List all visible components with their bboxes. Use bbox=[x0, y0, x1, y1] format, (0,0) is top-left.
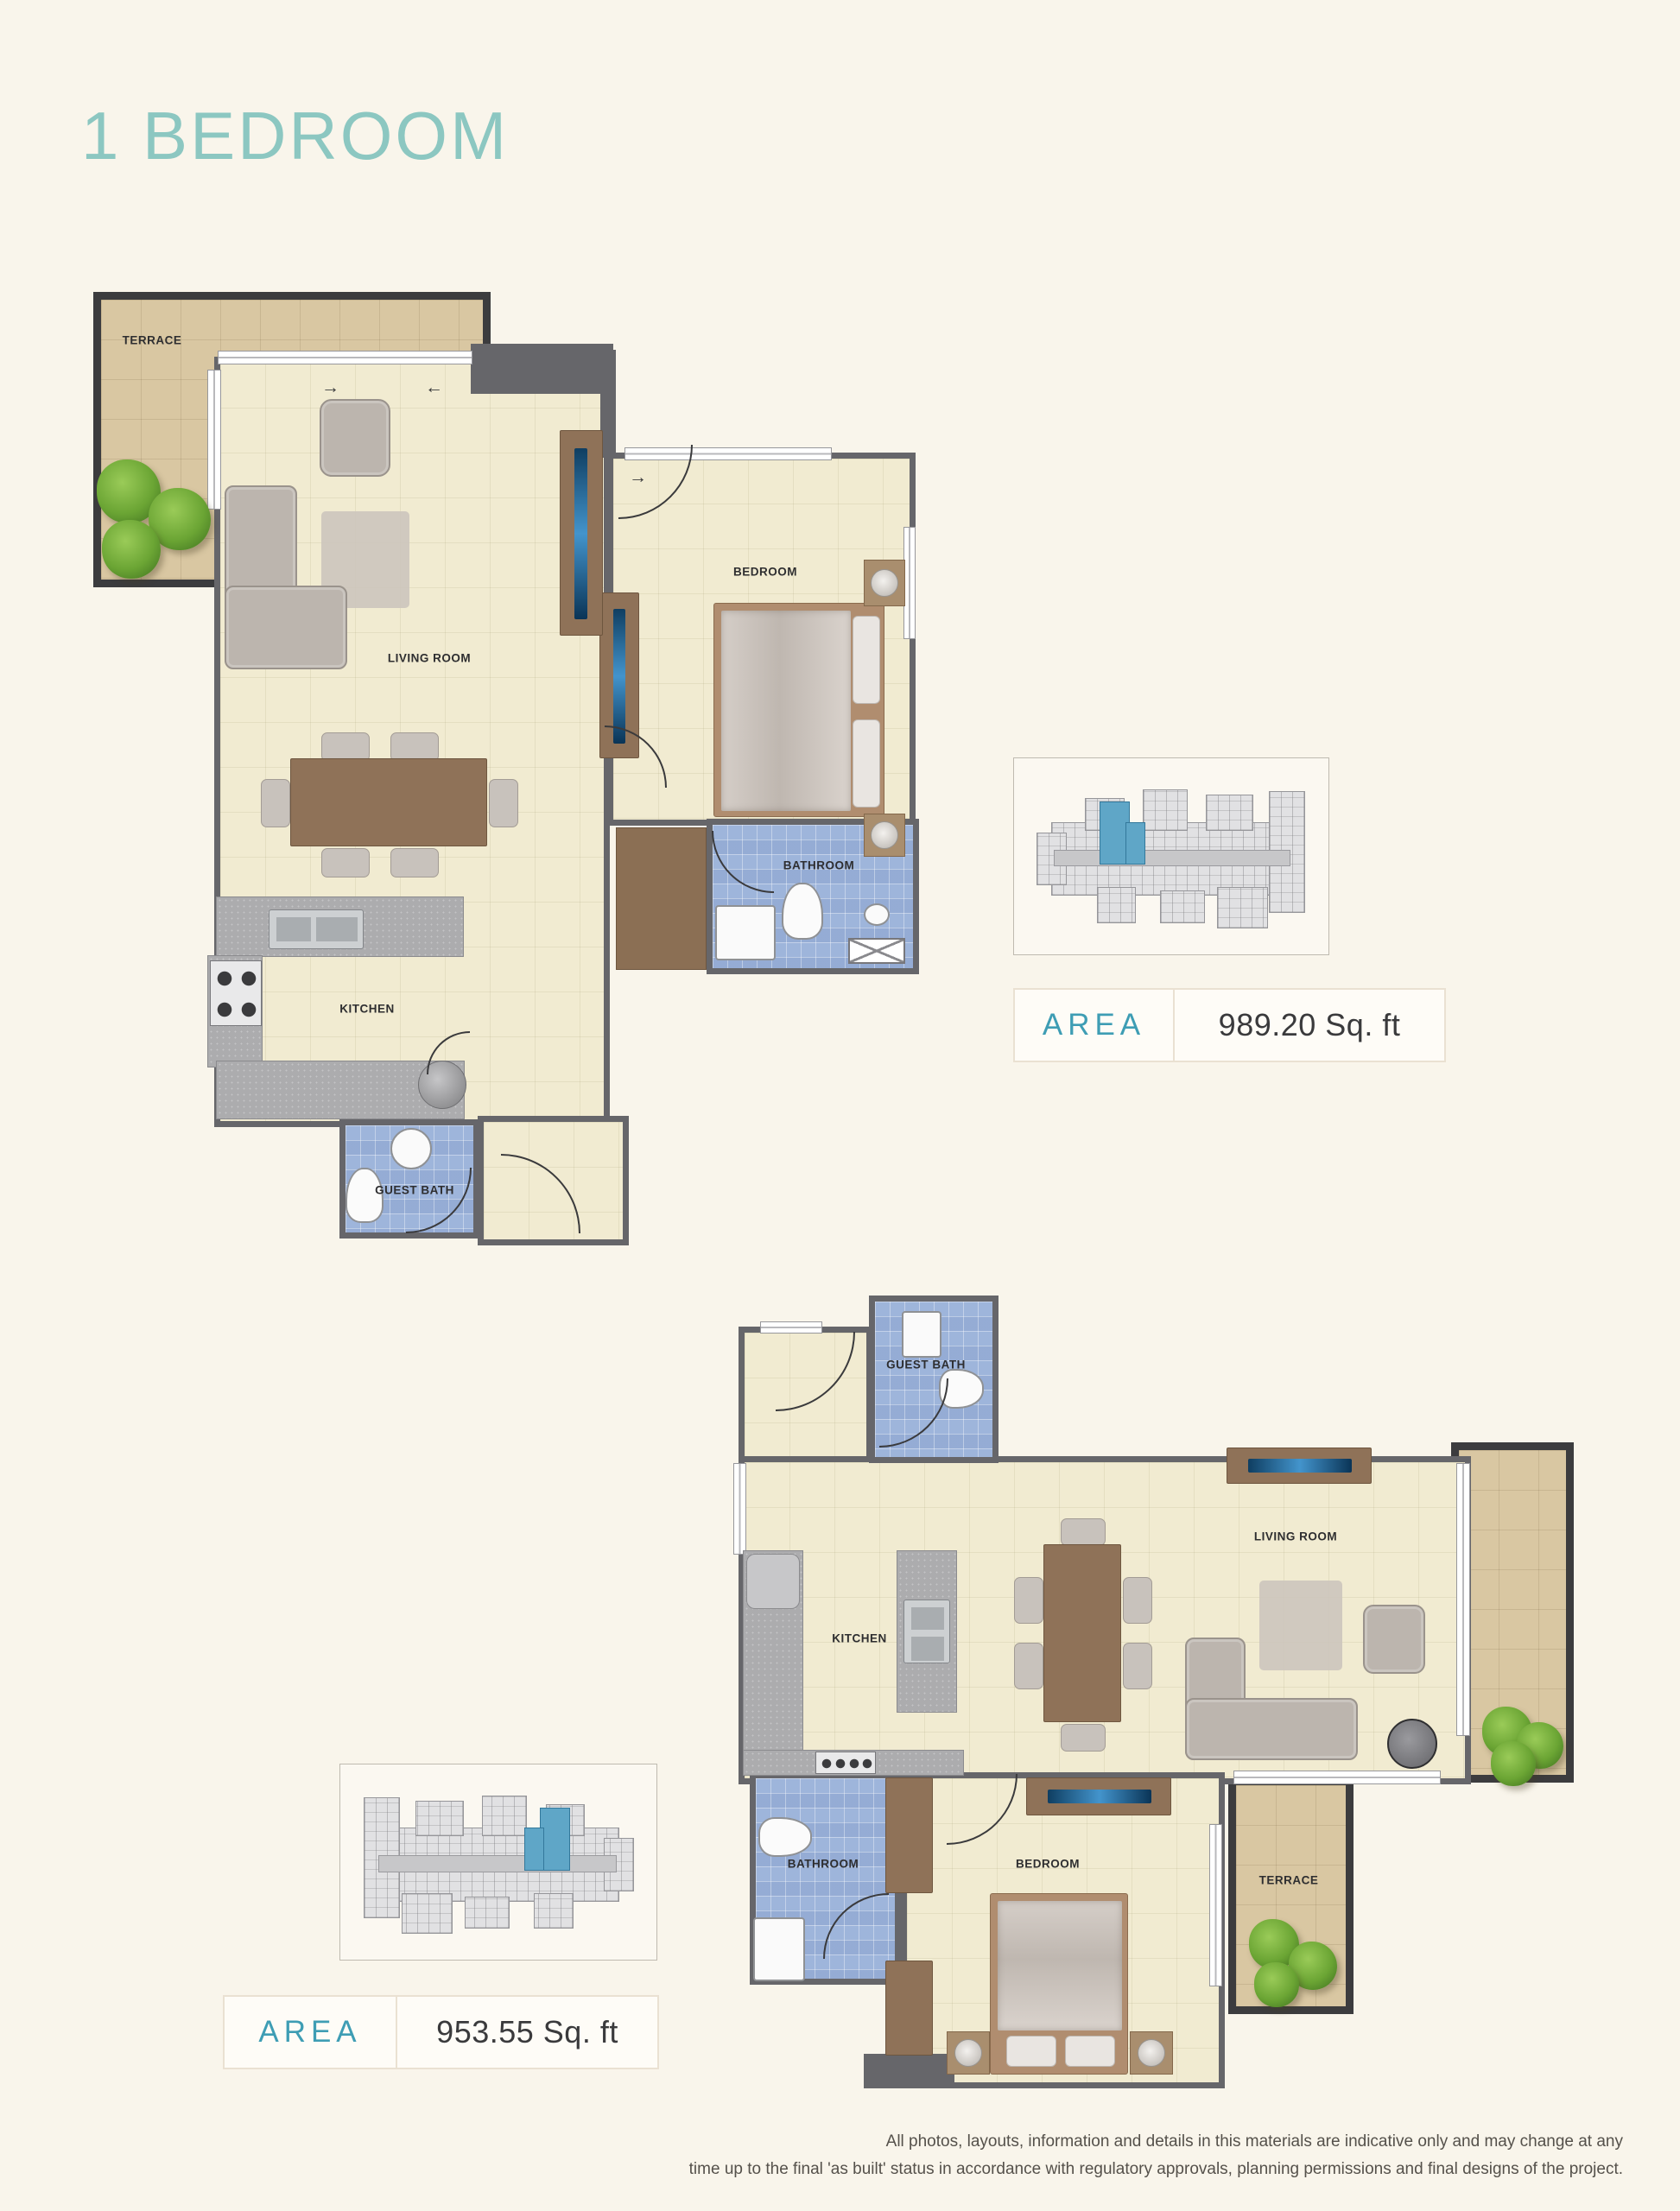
wardrobe-block bbox=[616, 827, 707, 970]
kitchen-counter bbox=[216, 896, 464, 957]
key-plan-wing bbox=[1160, 890, 1205, 923]
area-box-1: AREA 989.20 Sq. ft bbox=[1013, 988, 1446, 1062]
area-label: AREA bbox=[225, 1997, 397, 2068]
stove bbox=[815, 1752, 876, 1774]
room-label-kitchen: KITCHEN bbox=[339, 1003, 395, 1016]
dining-chair bbox=[1123, 1577, 1152, 1624]
side-table bbox=[1387, 1719, 1437, 1769]
window bbox=[1456, 1463, 1470, 1736]
key-plan-wing bbox=[482, 1796, 527, 1837]
armchair bbox=[320, 399, 390, 477]
key-plan-wing bbox=[1206, 795, 1253, 831]
tv-unit bbox=[1026, 1777, 1171, 1815]
window bbox=[207, 370, 221, 510]
nightstand bbox=[864, 814, 905, 857]
dining-chair bbox=[321, 732, 370, 762]
room-label-bedroom: BEDROOM bbox=[1016, 1858, 1080, 1871]
disclaimer-line-1: All photos, layouts, information and det… bbox=[689, 2128, 1623, 2156]
plant-icon bbox=[1491, 1741, 1536, 1786]
key-plan-2 bbox=[339, 1764, 657, 1961]
bed bbox=[713, 603, 884, 817]
airflow-arrow-icon: → bbox=[321, 378, 339, 396]
dining-chair bbox=[1123, 1643, 1152, 1689]
sink bbox=[390, 1128, 432, 1169]
room-label-guest-bath: GUEST BATH bbox=[375, 1184, 454, 1197]
dining-chair bbox=[1061, 1518, 1106, 1546]
key-plan-wing bbox=[534, 1893, 573, 1929]
dining-chair bbox=[1014, 1643, 1043, 1689]
room-label-kitchen: KITCHEN bbox=[832, 1632, 887, 1645]
dining-chair bbox=[1061, 1724, 1106, 1752]
nightstand bbox=[864, 560, 905, 606]
key-plan-wing bbox=[1143, 789, 1188, 831]
armchair bbox=[1363, 1605, 1425, 1674]
bed bbox=[990, 1893, 1128, 2075]
vanity bbox=[848, 938, 905, 964]
page: 1 BEDROOM bbox=[0, 0, 1680, 2211]
fridge bbox=[746, 1554, 800, 1609]
nightstand bbox=[947, 2031, 990, 2075]
unit-highlight bbox=[524, 1828, 545, 1871]
dining-chair bbox=[261, 779, 290, 827]
bed-duvet bbox=[721, 611, 851, 811]
room-label-terrace: TERRACE bbox=[123, 334, 182, 347]
plant-icon bbox=[102, 520, 161, 579]
kitchen-sink bbox=[269, 909, 364, 949]
sink bbox=[864, 903, 890, 926]
dining-chair bbox=[1014, 1577, 1043, 1624]
key-plan-wing bbox=[465, 1897, 510, 1929]
area-label: AREA bbox=[1015, 990, 1175, 1061]
room-label-bathroom: BATHROOM bbox=[788, 1858, 859, 1871]
airflow-arrow-icon: ← bbox=[425, 378, 443, 396]
nightstand bbox=[1130, 2031, 1173, 2075]
lamp-icon bbox=[871, 821, 898, 849]
key-plan-building bbox=[354, 1777, 643, 1948]
disclaimer-line-2: time up to the final 'as built' status i… bbox=[689, 2156, 1623, 2183]
room-label-bathroom: BATHROOM bbox=[783, 859, 855, 872]
key-plan-wing bbox=[415, 1801, 463, 1837]
sofa bbox=[225, 586, 347, 669]
bed-pillow bbox=[1006, 2036, 1056, 2067]
unit-highlight bbox=[1125, 822, 1146, 865]
lamp-icon bbox=[954, 2039, 982, 2067]
tv-unit bbox=[1227, 1448, 1372, 1484]
key-plan-wing bbox=[1217, 887, 1267, 928]
tv-screen bbox=[1048, 1790, 1151, 1803]
key-plan-wing bbox=[402, 1893, 453, 1935]
plant-icon bbox=[1254, 1962, 1299, 2007]
disclaimer: All photos, layouts, information and det… bbox=[689, 2128, 1623, 2183]
area-value: 989.20 Sq. ft bbox=[1175, 990, 1444, 1061]
room-label-guest-bath: GUEST BATH bbox=[886, 1359, 966, 1372]
room-label-living-room: LIVING ROOM bbox=[388, 652, 471, 665]
bed-pillow bbox=[853, 719, 880, 808]
tv-screen bbox=[574, 448, 587, 619]
rug bbox=[1259, 1581, 1342, 1670]
window bbox=[1233, 1771, 1441, 1784]
bed-duvet bbox=[998, 1901, 1122, 2030]
kitchen-counter bbox=[743, 1550, 803, 1758]
dining-table bbox=[290, 758, 487, 846]
wall-block bbox=[471, 344, 613, 394]
area-value: 953.55 Sq. ft bbox=[397, 1997, 657, 2068]
toilet bbox=[782, 883, 823, 940]
sofa bbox=[1185, 1698, 1358, 1760]
room-label-bedroom: BEDROOM bbox=[733, 566, 797, 579]
wardrobe bbox=[885, 1961, 933, 2056]
room-label-living-room: LIVING ROOM bbox=[1254, 1530, 1337, 1543]
shower-tray bbox=[715, 905, 776, 960]
wall-block bbox=[864, 2054, 954, 2088]
key-plan-corridor bbox=[1054, 850, 1290, 867]
page-title: 1 BEDROOM bbox=[81, 97, 509, 175]
lamp-icon bbox=[871, 569, 898, 597]
dining-chair bbox=[321, 848, 370, 877]
kitchen-sink bbox=[903, 1600, 950, 1663]
window bbox=[218, 351, 472, 364]
airflow-arrow-icon: → bbox=[629, 468, 647, 486]
dining-chair bbox=[390, 732, 439, 762]
dining-chair bbox=[489, 779, 518, 827]
window bbox=[733, 1463, 746, 1555]
bed-pillow bbox=[1065, 2036, 1115, 2067]
tv-screen bbox=[613, 609, 625, 744]
bathtub bbox=[753, 1917, 805, 1981]
key-plan-building bbox=[1028, 770, 1315, 942]
stove bbox=[210, 960, 262, 1026]
room-label-terrace: TERRACE bbox=[1259, 1874, 1319, 1887]
dining-chair bbox=[390, 848, 439, 877]
key-plan-1 bbox=[1013, 757, 1329, 955]
bed-pillow bbox=[853, 616, 880, 704]
wardrobe bbox=[885, 1777, 933, 1893]
key-plan-corridor bbox=[378, 1855, 617, 1872]
window bbox=[1209, 1824, 1222, 1986]
tv-unit bbox=[560, 430, 603, 636]
area-box-2: AREA 953.55 Sq. ft bbox=[223, 1995, 659, 2069]
sink bbox=[902, 1311, 941, 1358]
dining-table bbox=[1043, 1544, 1121, 1722]
tv-screen bbox=[1248, 1459, 1352, 1473]
key-plan-wing bbox=[1097, 887, 1136, 923]
lamp-icon bbox=[1138, 2039, 1165, 2067]
window bbox=[903, 527, 916, 639]
